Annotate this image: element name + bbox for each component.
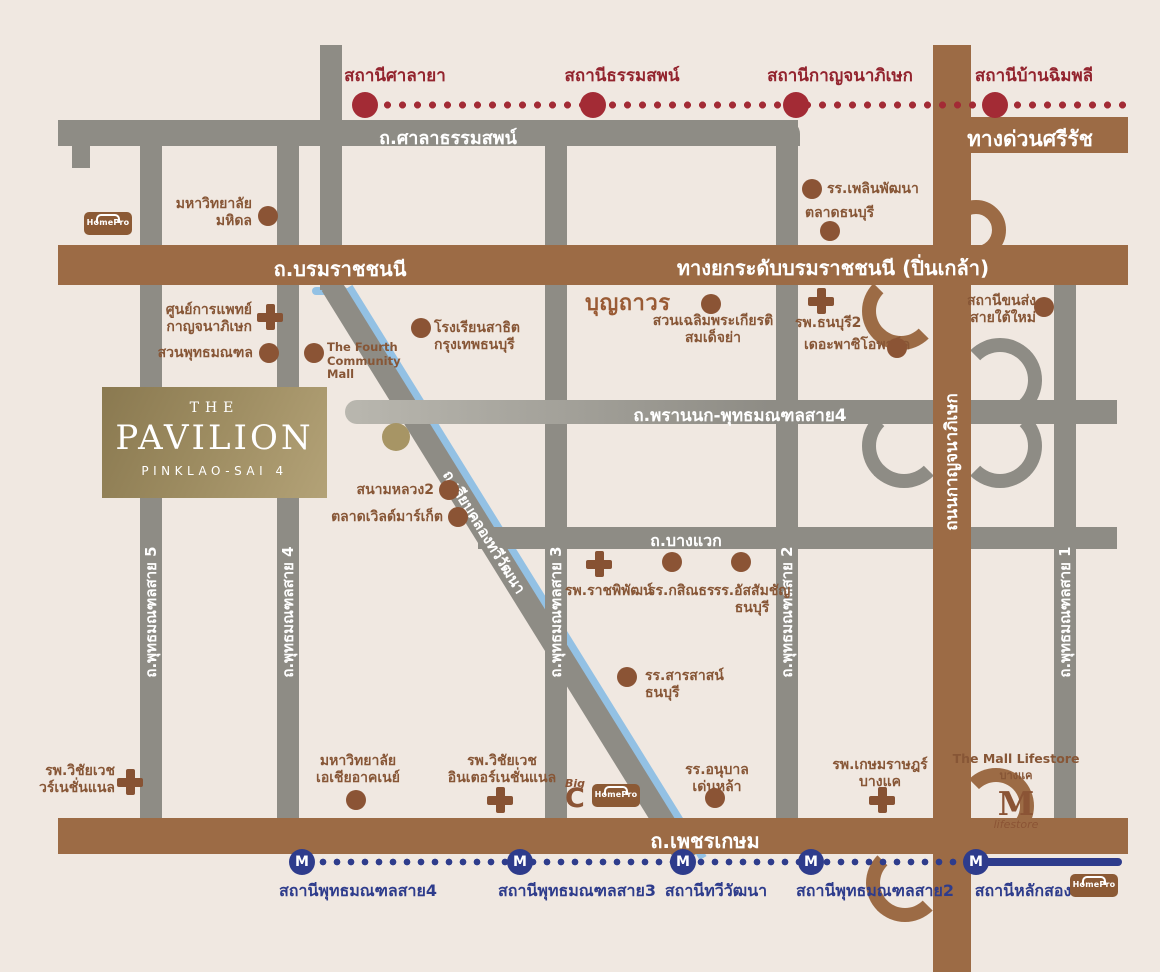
mrt-station-sai2-icon: M [798, 849, 824, 875]
station-kanchanaphisek-dot [783, 92, 809, 118]
label-line: Community [327, 355, 401, 369]
poi-label-kasemrad: รพ.เกษมราษฎร์ บางแค [832, 757, 927, 790]
mrt-station-sai4-icon: M [289, 849, 315, 875]
road-label-si-rat: ทางด่วนศรีรัช [967, 123, 1093, 156]
label-line: ธนบุรี [645, 685, 724, 702]
poi-dot-assumption [731, 552, 751, 572]
poi-label-vichaivej-left: รพ.วิชัยเวช วร์เนชั่นแนล [39, 763, 115, 796]
station-ban-chimphli-dot [982, 92, 1008, 118]
station-kanchanaphisek-label: สถานีกาญจนาภิเษก [767, 62, 913, 89]
big-c-logo: Big C [565, 779, 585, 811]
road-stub [72, 146, 90, 168]
label-line: มหาวิทยาลัย [316, 753, 400, 770]
hospital-cross-icon-vichaivej [487, 787, 513, 813]
poi-label-satit: โรงเรียนสาธิต กรุงเทพธนบุรี [434, 320, 520, 353]
label-line: สวนเฉลิมพระเกียรติ [653, 313, 773, 330]
road-label-sai1: ถ.พุทธมณฑลสาย 1 [1057, 522, 1073, 702]
mrt-station-thawi-watthana-icon: M [670, 849, 696, 875]
label-line: รพ.เกษมราษฎร์ [832, 757, 927, 774]
label-line: ตลาดธนบุรี [805, 205, 874, 222]
mall-title: The Mall Lifestore [953, 751, 1080, 766]
road-label-sai5: ถ.พุทธมณฑลสาย 5 [143, 522, 159, 702]
road-label-phet-kasem: ถ.เพชรเกษม [650, 825, 759, 857]
label-line: The Fourth [327, 341, 401, 355]
label-line: รพ.วิชัยเวช [39, 763, 115, 780]
label-line: Mall [327, 368, 401, 382]
poi-label-sai-tai-mai: สถานีขนส่ง สายใต้ใหม่ [967, 293, 1036, 326]
road-label-sai3: ถ.พุทธมณฑลสาย 3 [548, 522, 564, 702]
poi-dot-denla [705, 788, 725, 808]
poi-label-assumption: รร.อัสสัมชัญ ธนบุรี [714, 583, 791, 616]
station-salaya-dot [352, 92, 378, 118]
poi-label-mahidol: มหาวิทยาลัย มหิดล [176, 196, 252, 229]
hospital-cross-icon-ratchaphiphat [586, 551, 612, 577]
mrt-station-lak-song-icon: M [963, 849, 989, 875]
homepro-label: HomePro [1070, 880, 1118, 889]
mrt-label-lak-song: สถานีหลักสอง [975, 879, 1072, 904]
label-line: เอเชียอาคเนย์ [316, 770, 400, 787]
mall-m-icon: M [953, 787, 1080, 820]
project-location-dot [382, 423, 410, 451]
poi-dot-kasintorn [662, 552, 682, 572]
poi-dot-sau [346, 790, 366, 810]
label-line: รร.เพลินพัฒนา [827, 181, 919, 198]
label-line: อินเตอร์เนชั่นแนล [448, 770, 556, 787]
the-mall-lifestore-logo: The Mall Lifestore บางแค M lifestore [953, 751, 1080, 831]
label-line: สวนพุทธมณฑล [158, 345, 253, 362]
station-salaya-label: สถานีศาลายา [344, 62, 446, 89]
poi-dot-talad-thonburi [820, 221, 840, 241]
road-label-kanchanaphisek: ถนนกาญจนาภิเษก [943, 352, 961, 572]
label-line: กรุงเทพธนบุรี [434, 337, 520, 354]
road-sai3 [545, 124, 567, 854]
poi-label-sanam-luang2: สนามหลวง2 [357, 482, 434, 499]
label-line: รพ.ราชพิพัฒน์ [565, 583, 653, 600]
label-line: รร.กสิณธร [648, 583, 714, 600]
location-map: ถ.ศาลาธรรมสพน์ ทางด่วนศรีรัช ถ.บรมราชชนน… [0, 0, 1160, 972]
mrt-label-sai4: สถานีพุทธมณฑลสาย4 [279, 879, 437, 904]
poi-label-thonburi2: รพ.ธนบุรี2 [795, 315, 861, 332]
label-line: มหิดล [176, 213, 252, 230]
road-sai2 [776, 120, 798, 854]
poi-label-fourth-mall: The Fourth Community Mall [327, 341, 401, 382]
pavilion-logo: THE PAVILION PINKLAO-SAI 4 [102, 387, 327, 498]
label-line: สายใต้ใหม่ [967, 310, 1036, 327]
poi-dot-chalerm-park [701, 294, 721, 314]
poi-dot-phutthamonthon-park [259, 343, 279, 363]
poi-dot-mahidol [258, 206, 278, 226]
hospital-cross-icon-vichaivej-left [117, 769, 143, 795]
mrt-dotted-line [302, 857, 976, 867]
poi-dot-sarasas [617, 667, 637, 687]
label-line: โรงเรียนสาธิต [434, 320, 520, 337]
label-line: วร์เนชั่นแนล [39, 780, 115, 797]
hospital-cross-icon-kasemrad [869, 787, 895, 813]
logo-name: PAVILION [102, 418, 327, 458]
poi-label-talad-thonburi: ตลาดธนบุรี [805, 205, 874, 222]
homepro-logo-bottom-right: HomePro [1070, 874, 1118, 897]
label-line: ธนบุรี [714, 600, 791, 617]
road-bang-waek [478, 527, 1117, 549]
label-line: รร.อัสสัมชัญ [714, 583, 791, 600]
station-thammasop-label: สถานีธรรมสพน์ [565, 62, 680, 89]
poi-label-chalerm-park: สวนเฉลิมพระเกียรติ สมเด็จย่า [653, 313, 773, 346]
poi-label-sarasas: รร.สารสาสน์ ธนบุรี [645, 668, 724, 701]
big-c-c: C [565, 788, 585, 811]
poi-label-phutthamonthon-park: สวนพุทธมณฑล [158, 345, 253, 362]
poi-label-sau: มหาวิทยาลัย เอเชียอาคเนย์ [316, 753, 400, 786]
label-line: สมเด็จย่า [653, 330, 773, 347]
poi-label-world-market: ตลาดเวิลด์มาร์เก็ต [331, 509, 443, 526]
mrt-label-thawi-watthana: สถานีทวีวัฒนา [665, 879, 767, 904]
poi-dot-fourth-mall [304, 343, 324, 363]
label-line: สนามหลวง2 [357, 482, 434, 499]
label-line: ตลาดเวิลด์มาร์เก็ต [331, 509, 443, 526]
logo-subtitle: PINKLAO-SAI 4 [102, 464, 327, 478]
mrt-label-sai3: สถานีพุทธมณฑลสาย3 [498, 879, 656, 904]
red-rail-line [365, 100, 1128, 110]
label-line: รพ.ธนบุรี2 [795, 315, 861, 332]
poi-dot-paseo-park [887, 338, 907, 358]
road-label-elevated-pinklao: ทางยกระดับบรมราชชนนี (ปิ่นเกล้า) [677, 252, 989, 284]
label-line: มหาวิทยาลัย [176, 196, 252, 213]
road-label-sala-thammasop: ถ.ศาลาธรรมสพน์ [379, 123, 517, 152]
label-line: รร.สารสาสน์ [645, 668, 724, 685]
road-label-bang-waek: ถ.บางแวก [650, 529, 722, 554]
label-line: สถานีขนส่ง [967, 293, 1036, 310]
label-line: รพ.วิชัยเวช [448, 753, 556, 770]
mall-script: lifestore [953, 818, 1080, 831]
hospital-cross-icon-medcenter [257, 304, 283, 330]
logo-the: THE [102, 400, 327, 416]
poi-label-vichaivej: รพ.วิชัยเวช อินเตอร์เนชั่นแนล [448, 753, 556, 786]
label-line: กาญจนาภิเษก [166, 319, 252, 336]
poi-dot-sai-tai-mai [1034, 297, 1054, 317]
road-label-phran-nok: ถ.พรานนก-พุทธมณฑลสาย4 [633, 402, 846, 429]
label-line: รร.อนุบาล [685, 762, 749, 779]
homepro-label: HomePro [84, 218, 132, 227]
station-thammasop-dot [580, 92, 606, 118]
mrt-station-sai3-icon: M [507, 849, 533, 875]
label-line: ศูนย์การแพทย์ [166, 302, 252, 319]
homepro-logo-middle: HomePro [592, 784, 640, 807]
poi-dot-satit [411, 318, 431, 338]
mrt-solid-line [984, 858, 1122, 866]
poi-dot-plearn-pattana [802, 179, 822, 199]
homepro-logo-top-left: HomePro [84, 212, 132, 235]
mrt-label-sai2: สถานีพุทธมณฑลสาย2 [796, 879, 954, 904]
poi-label-kasintorn: รร.กสิณธร [648, 583, 714, 600]
road-label-borommaratchachonnani: ถ.บรมราชชนนี [274, 253, 407, 285]
poi-label-plearn-pattana: รร.เพลินพัฒนา [827, 181, 919, 198]
homepro-label: HomePro [592, 790, 640, 799]
poi-label-ratchaphiphat: รพ.ราชพิพัฒน์ [565, 583, 653, 600]
poi-dot-world-market [448, 507, 468, 527]
station-ban-chimphli-label: สถานีบ้านฉิมพลี [975, 62, 1093, 89]
poi-label-medcenter: ศูนย์การแพทย์ กาญจนาภิเษก [166, 302, 252, 335]
mall-subtitle: บางแค [953, 766, 1080, 784]
road-label-sai4: ถ.พุทธมณฑลสาย 4 [280, 522, 296, 702]
hospital-cross-icon-thonburi2 [808, 288, 834, 314]
poi-dot-sanam-luang2 [439, 480, 459, 500]
